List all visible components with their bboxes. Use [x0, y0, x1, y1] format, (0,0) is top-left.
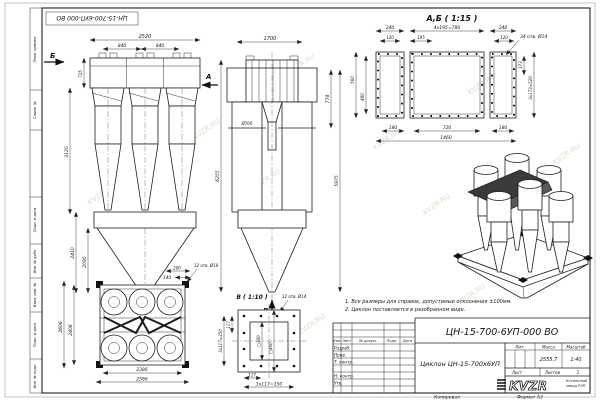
margin-label-perv: Перв. примен.	[33, 36, 37, 63]
col-podp: Подп.	[387, 339, 398, 343]
collector-plate	[238, 210, 306, 228]
doc-number: ЦН-15-700-6УП-000 ВО	[446, 327, 559, 338]
dim-label: 5975	[334, 175, 340, 187]
col-data: Дата	[402, 339, 412, 343]
plan-view: 2606 2406 2386 2586 200 140 12 отв. Ø18	[58, 263, 219, 383]
watermark-text: KVZR.RU	[297, 312, 327, 336]
view-arrow-b-label: Б	[50, 52, 55, 60]
mass-value: 2555,7	[540, 357, 558, 363]
holes-callout: 12 отв. Ø18	[194, 263, 219, 268]
dim-label: 4х195=780	[434, 25, 461, 31]
dim-label: 1460	[440, 135, 452, 141]
margin-label-inv-dubl: Инв. № дубл.	[33, 249, 37, 274]
margin-label-vzam: Взам. инв. №	[33, 283, 37, 308]
dim-label: 3х117=350	[256, 382, 283, 388]
dim-label: 180	[389, 125, 398, 131]
dim-label: 3х173=520	[528, 76, 533, 100]
dim-label: 3х117=350	[218, 329, 223, 353]
dim-label: 120	[500, 35, 508, 40]
title-block: Изм. Лист № докум. Подп. Дата Разраб. Пр…	[333, 318, 590, 393]
holes-callout: 34 отв. Ø14	[520, 33, 547, 40]
scale-label: Масштаб	[566, 345, 586, 350]
company-line-1: Котельный	[566, 379, 588, 383]
row-prov: Пров.	[334, 353, 346, 358]
dim-label: 117	[248, 373, 256, 378]
notes: 1. Все размеры для справок, допустимые о…	[345, 299, 512, 313]
margin-label-podp1: Подп. и дата	[33, 208, 37, 232]
sheets-label: Листов	[544, 370, 561, 375]
section-ab-view: А,Б ( 1:15 ) 240 4х195=780 240 120 195 1…	[350, 14, 547, 141]
margin-label-inv-podl: Инв. № подл.	[33, 364, 37, 389]
dim-label: 2520	[139, 34, 152, 40]
collector-plate	[94, 212, 196, 228]
dim-label: 774	[325, 95, 331, 104]
mass-label: Масса	[542, 345, 555, 350]
dim-label: 2406	[68, 324, 74, 336]
lit-label: Лит.	[514, 345, 524, 350]
dim-label: 725	[78, 70, 83, 78]
engineering-drawing: KVZR.RU KVZR.RU KVZR.RU KVZR.RU KVZR.RU …	[0, 0, 600, 400]
dim-label: 2410	[70, 247, 76, 259]
col-doc: № докум.	[358, 339, 377, 343]
flange-view-title: В ( 1:10 )	[236, 294, 268, 301]
margin-label-podp2: Подп. и дата	[33, 323, 37, 347]
dim-label: 840	[156, 43, 165, 49]
watermark-text: KVZR.RU	[552, 142, 582, 166]
watermark-text: KVZR.RU	[192, 117, 222, 141]
logo-text: KVZR	[509, 379, 548, 393]
view-arrow-a-label: А	[205, 73, 211, 81]
dim-label: □400	[268, 342, 273, 354]
cyclone-elements	[92, 88, 198, 214]
format-label: Формат А3	[517, 395, 543, 400]
dim-label: 3120	[64, 146, 70, 158]
dim-label: 720	[443, 125, 452, 131]
dim-label: 173	[518, 61, 523, 69]
sheet-label: Лист	[511, 370, 523, 375]
dim-label: 560	[350, 76, 355, 84]
margin-label-sprav: Справ. №	[33, 101, 37, 119]
view-front: 1700 774 6255 5975 Ø700 В	[215, 36, 340, 318]
scale-value: 1:40	[570, 357, 581, 363]
dim-label: 2095	[82, 256, 88, 268]
dim-label: 1700	[264, 36, 277, 42]
row-tkontr: Т. контр.	[334, 360, 353, 365]
drawing-sheet: KVZR.RU KVZR.RU KVZR.RU KVZR.RU KVZR.RU …	[0, 0, 600, 400]
company-logo: KVZR Котельный завод РЭП	[497, 379, 588, 393]
dim-label: 240	[386, 25, 395, 31]
product-name: Циклон ЦН-15-700х6УП	[420, 360, 500, 368]
dim-label: 120	[386, 35, 394, 40]
stamp-docnumber-rotated: ЦН-15-700-6УП-000 ВО	[56, 14, 127, 21]
dim-label: 2586	[136, 377, 148, 383]
holes-callout: 12 отв. Ø14	[282, 294, 307, 299]
dim-label: 840	[118, 43, 127, 49]
dim-label: 117	[226, 321, 231, 329]
dim-label: Ø700	[241, 121, 253, 126]
row-utv: Утв.	[334, 381, 343, 386]
dim-label: 140	[163, 275, 171, 280]
dim-label: 2606	[58, 321, 64, 333]
dim-label: 2386	[136, 367, 148, 373]
dim-label: 195	[417, 35, 425, 40]
sheets-value: 1	[577, 370, 580, 376]
section-title: А,Б ( 1:15 )	[426, 14, 478, 23]
watermark-text: KVZR.RU	[422, 192, 452, 216]
row-nkontr: Н. контр.	[334, 374, 354, 379]
note-line-2: 2. Циклон поставляется в разобранном вид…	[345, 307, 465, 313]
dim-label: 240	[499, 25, 508, 31]
view-side: 2520 840 840 725 3120 2410 2095 Б А	[44, 34, 218, 298]
note-line-1: 1. Все размеры для справок, допустимые о…	[345, 299, 512, 305]
dim-label: 180	[499, 125, 508, 131]
cyclone-3d	[487, 180, 573, 273]
copied-label: Копировал	[434, 395, 460, 400]
dim-label: 6255	[215, 170, 221, 182]
col-izm: Изм.	[333, 339, 341, 343]
isometric-view	[453, 154, 593, 299]
row-razrab: Разраб.	[334, 346, 350, 351]
dim-label: □300	[256, 335, 261, 347]
dim-label: 200	[173, 266, 181, 271]
dim-label: 460	[360, 93, 365, 101]
col-list: Лист	[341, 339, 352, 343]
company-line-2: завод РЭП	[566, 384, 586, 388]
